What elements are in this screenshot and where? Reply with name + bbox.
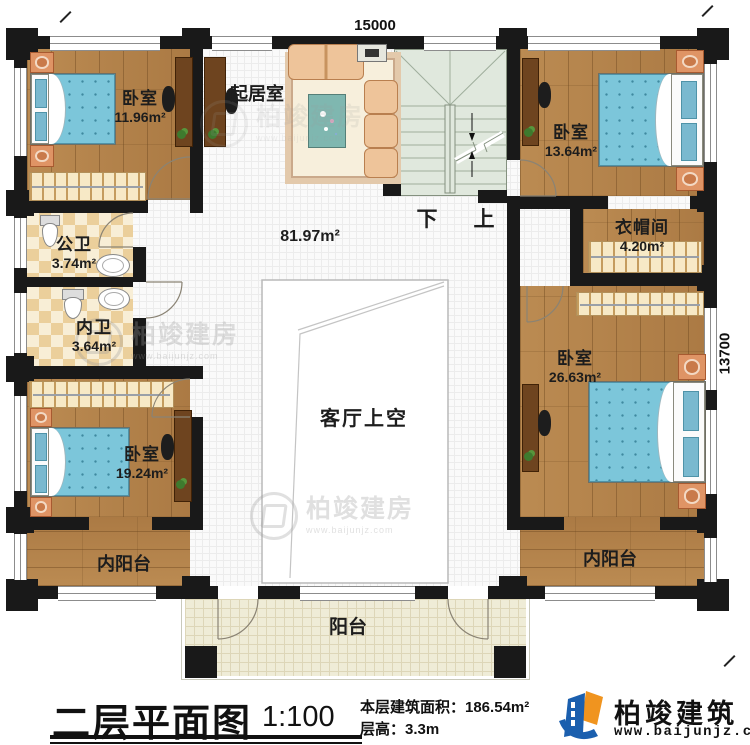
watermark-url: www.baijunjz.com (306, 525, 414, 535)
label-bedroom-top-left: 卧室 11.96m² (114, 84, 165, 125)
room-area: 4.20m² (615, 238, 669, 254)
room-name: 阳台 (329, 617, 367, 638)
watermark: 柏竣建房 www.baijunjz.com (250, 492, 414, 540)
company-url: www.baijunjz.com (614, 724, 750, 740)
room-area: 3.74m² (52, 255, 96, 271)
room-name: 内卫 (72, 313, 116, 338)
title-underline (50, 735, 362, 739)
label-inner-balcony-left: 内阳台 (97, 550, 151, 576)
floor-area-text: 本层建筑面积：186.54m² (360, 696, 529, 717)
company-logo-icon (556, 688, 610, 742)
label-stairs-up: 上 (474, 203, 495, 233)
room-name: 卧室 (116, 440, 168, 465)
label-stairs-down: 下 (417, 203, 438, 233)
label-public-bath: 公卫 3.74m² (52, 230, 96, 271)
label-bedroom-right: 卧室 26.63m² (549, 344, 601, 385)
room-area: 19.24m² (116, 465, 168, 481)
watermark-logo-icon (200, 100, 248, 148)
watermark-url: www.baijunjz.com (256, 133, 364, 143)
watermark-logo-icon (250, 492, 298, 540)
room-name: 公卫 (52, 230, 96, 255)
floorplan-canvas: 柏竣建房 www.baijunjz.com 柏竣建房 www.baijunjz.… (0, 0, 750, 745)
label-inner-balcony-right: 内阳台 (583, 545, 637, 571)
logo-orange-shape (582, 691, 603, 725)
room-area: 26.63m² (549, 369, 601, 385)
watermark-url: www.baijunjz.com (131, 351, 239, 361)
room-name: 客厅上空 (320, 408, 408, 430)
label-hall-area: 81.97m² (280, 228, 340, 246)
stairs-down-label: 下 (417, 208, 438, 231)
room-area: 11.96m² (114, 109, 165, 125)
title-underline (50, 742, 362, 744)
room-name: 衣帽间 (615, 213, 669, 238)
watermark: 柏竣建房 www.baijunjz.com (200, 100, 364, 148)
label-void: 客厅上空 (320, 402, 408, 431)
room-area: 13.64m² (545, 143, 597, 159)
room-name: 卧室 (114, 84, 165, 109)
watermark-text: 柏竣建房 (131, 321, 239, 349)
stairs-up-label: 上 (474, 208, 495, 231)
dimension-depth: 13700 (717, 317, 734, 391)
drawing-scale: 1:100 (262, 701, 335, 734)
label-bedroom-top-right: 卧室 13.64m² (545, 118, 597, 159)
label-bedroom-bottom-left: 卧室 19.24m² (116, 440, 168, 481)
watermark-text: 柏竣建房 (256, 103, 364, 131)
room-name: 卧室 (545, 118, 597, 143)
room-name: 内阳台 (97, 554, 151, 574)
label-inner-bath: 内卫 3.64m² (72, 313, 116, 354)
label-living: 起居室 (230, 80, 284, 106)
dimension-width: 15000 (340, 17, 410, 34)
label-cloakroom: 衣帽间 4.20m² (615, 213, 669, 254)
room-name: 卧室 (549, 344, 601, 369)
label-balcony: 阳台 (329, 612, 367, 639)
void-and-doors-overlay (0, 0, 750, 745)
room-area: 81.97m² (280, 228, 340, 245)
floor-height-text: 层高：3.3m (360, 718, 439, 739)
room-name: 内阳台 (583, 549, 637, 569)
watermark-text: 柏竣建房 (306, 495, 414, 523)
room-name: 起居室 (230, 84, 284, 104)
room-area: 3.64m² (72, 338, 116, 354)
